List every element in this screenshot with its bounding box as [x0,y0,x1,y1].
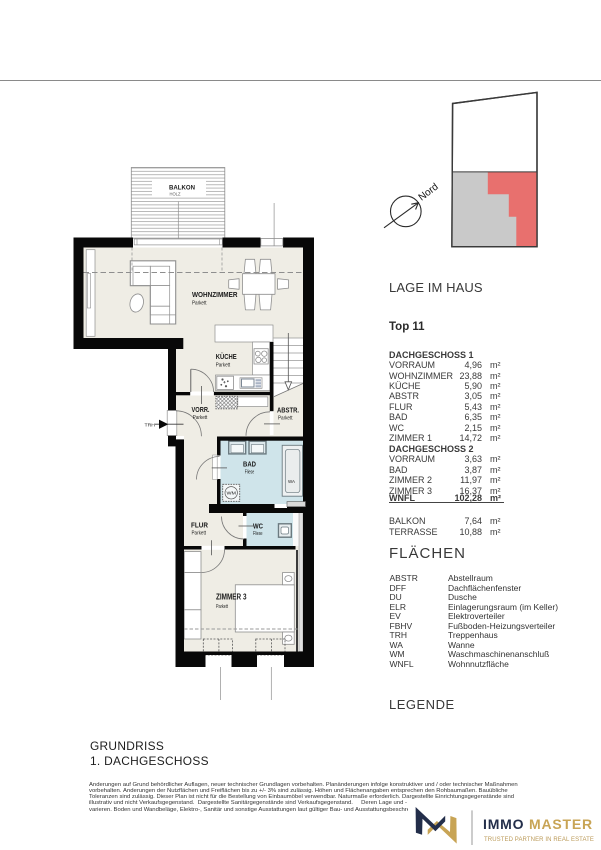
svg-text:Fliese: Fliese [245,470,255,476]
svg-text:Parkett: Parkett [278,416,293,422]
svg-text:FLUR: FLUR [191,521,208,530]
svg-text:KÜCHE: KÜCHE [216,352,237,361]
svg-text:WOHNZIMMER: WOHNZIMMER [192,290,238,299]
svg-text:Nord: Nord [417,182,441,204]
svg-text:WA: WA [288,479,296,484]
svg-text:HOLZ: HOLZ [170,192,181,198]
svg-text:WM: WM [227,490,237,495]
svg-text:Parkett: Parkett [216,604,228,610]
svg-text:Parkett: Parkett [193,415,208,421]
svg-text:Parkett: Parkett [192,531,207,537]
svg-text:VORR.: VORR. [192,405,210,414]
svg-text:BAD: BAD [243,460,256,469]
svg-text:BALKON: BALKON [169,185,195,192]
svg-text:ZIMMER 3: ZIMMER 3 [216,593,247,602]
svg-text:ABSTR.: ABSTR. [277,406,299,415]
svg-text:TRH: TRH [145,423,156,428]
svg-text:Fliese: Fliese [253,531,263,537]
svg-text:Parkett: Parkett [216,363,231,369]
svg-text:WC: WC [253,522,263,531]
svg-text:Parkett: Parkett [192,301,207,307]
